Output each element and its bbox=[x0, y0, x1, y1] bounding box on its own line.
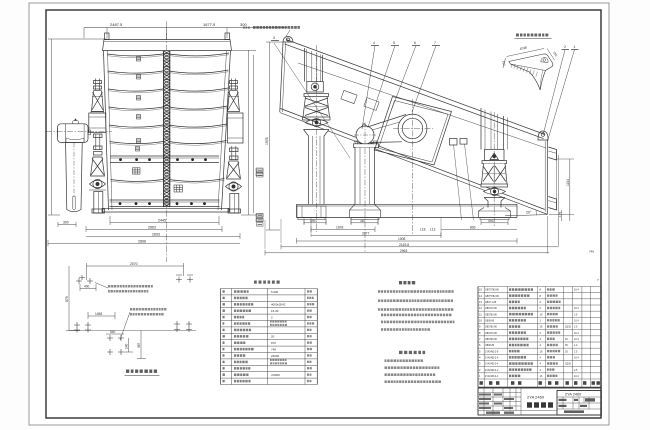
svg-text:L12: L12 bbox=[430, 227, 436, 231]
svg-text:1978: 1978 bbox=[265, 137, 269, 145]
svg-text:400: 400 bbox=[84, 284, 90, 288]
svg-text:2YA2460.2-2: 2YA2460.2-2 bbox=[485, 369, 499, 372]
svg-text:10.4: 10.4 bbox=[574, 320, 579, 323]
svg-text:GB5783-86: GB5783-86 bbox=[485, 314, 497, 316]
svg-text:300: 300 bbox=[240, 22, 247, 27]
svg-text:493: 493 bbox=[488, 219, 494, 223]
svg-text:1458: 1458 bbox=[95, 312, 102, 316]
svg-text:879: 879 bbox=[65, 296, 69, 302]
svg-text:893: 893 bbox=[470, 226, 476, 230]
svg-text:10.4: 10.4 bbox=[574, 338, 579, 341]
svg-text:20°: 20° bbox=[526, 211, 532, 215]
svg-text:2445: 2445 bbox=[158, 218, 166, 222]
svg-text:2YA2460.2-4: 2YA2460.2-4 bbox=[485, 363, 499, 366]
svg-text:10.4: 10.4 bbox=[574, 307, 579, 310]
svg-text:970: 970 bbox=[271, 341, 276, 345]
svg-text:746: 746 bbox=[589, 250, 594, 254]
svg-text:2077: 2077 bbox=[362, 232, 370, 236]
svg-text:6: 6 bbox=[414, 41, 416, 45]
svg-text:2963: 2963 bbox=[400, 249, 408, 253]
svg-text:387: 387 bbox=[137, 342, 141, 348]
svg-text:2163.8: 2163.8 bbox=[399, 243, 409, 247]
svg-text:10.4: 10.4 bbox=[574, 332, 579, 335]
svg-text:Q235: Q235 bbox=[565, 363, 572, 366]
svg-text:140: 140 bbox=[125, 343, 129, 349]
svg-text:748: 748 bbox=[271, 347, 276, 351]
svg-text:10.4: 10.4 bbox=[574, 375, 579, 378]
svg-text:2: 2 bbox=[564, 45, 566, 49]
svg-text:2YA2460.2-6: 2YA2460.2-6 bbox=[485, 357, 499, 360]
svg-text:2YA2460.2-8: 2YA2460.2-8 bbox=[485, 350, 499, 353]
svg-text:24000: 24000 bbox=[271, 354, 279, 358]
svg-text:4000x2042: 4000x2042 bbox=[271, 303, 286, 307]
svg-text:387: 387 bbox=[360, 219, 366, 223]
svg-text:Q235: Q235 bbox=[565, 326, 572, 329]
svg-text:2663: 2663 bbox=[148, 225, 156, 229]
svg-text:GB95-85: GB95-85 bbox=[485, 321, 495, 323]
svg-text:GB6170-86: GB6170-86 bbox=[485, 308, 497, 310]
svg-text:6.000: 6.000 bbox=[271, 290, 279, 294]
svg-text:GB97.1-85: GB97.1-85 bbox=[485, 302, 497, 304]
svg-text:2693: 2693 bbox=[152, 232, 160, 236]
svg-text:GB5782-86: GB5782-86 bbox=[485, 327, 497, 329]
svg-text:1008: 1008 bbox=[398, 237, 406, 241]
svg-text:10.4: 10.4 bbox=[574, 289, 579, 292]
svg-text:1678: 1678 bbox=[336, 226, 344, 230]
svg-text:GB6170-86: GB6170-86 bbox=[485, 333, 497, 335]
svg-text:4.5000: 4.5000 bbox=[271, 373, 280, 377]
svg-text:GB5780-86: GB5780-86 bbox=[485, 339, 497, 341]
svg-text:2070: 2070 bbox=[130, 262, 138, 266]
svg-text:L18: L18 bbox=[420, 227, 426, 231]
svg-text:7: 7 bbox=[434, 41, 436, 45]
svg-text:GB/T5783-86: GB/T5783-86 bbox=[485, 290, 500, 292]
svg-text:2YA2460.2-1: 2YA2460.2-1 bbox=[485, 375, 499, 378]
svg-text:175: 175 bbox=[558, 212, 562, 217]
svg-text:300: 300 bbox=[63, 220, 69, 224]
svg-text:GB/T5782-86: GB/T5782-86 bbox=[485, 296, 500, 298]
svg-text:2896: 2896 bbox=[138, 239, 146, 243]
svg-text:2487.5: 2487.5 bbox=[110, 22, 123, 27]
svg-text:3: 3 bbox=[273, 36, 275, 40]
svg-text:4: 4 bbox=[373, 41, 375, 45]
svg-text:2YA 2460: 2YA 2460 bbox=[527, 395, 545, 400]
svg-text:10.4: 10.4 bbox=[574, 357, 579, 360]
svg-text:GB96-85: GB96-85 bbox=[485, 345, 495, 347]
svg-text:1: 1 bbox=[574, 45, 576, 49]
svg-text:5: 5 bbox=[393, 41, 395, 45]
svg-text:16-30: 16-30 bbox=[271, 309, 279, 313]
svg-text:1677.5: 1677.5 bbox=[203, 22, 216, 27]
svg-text:493: 493 bbox=[310, 219, 316, 223]
svg-text:1104: 1104 bbox=[566, 179, 570, 186]
svg-text:20: 20 bbox=[271, 335, 275, 339]
svg-text:2YA 2460: 2YA 2460 bbox=[565, 393, 581, 397]
